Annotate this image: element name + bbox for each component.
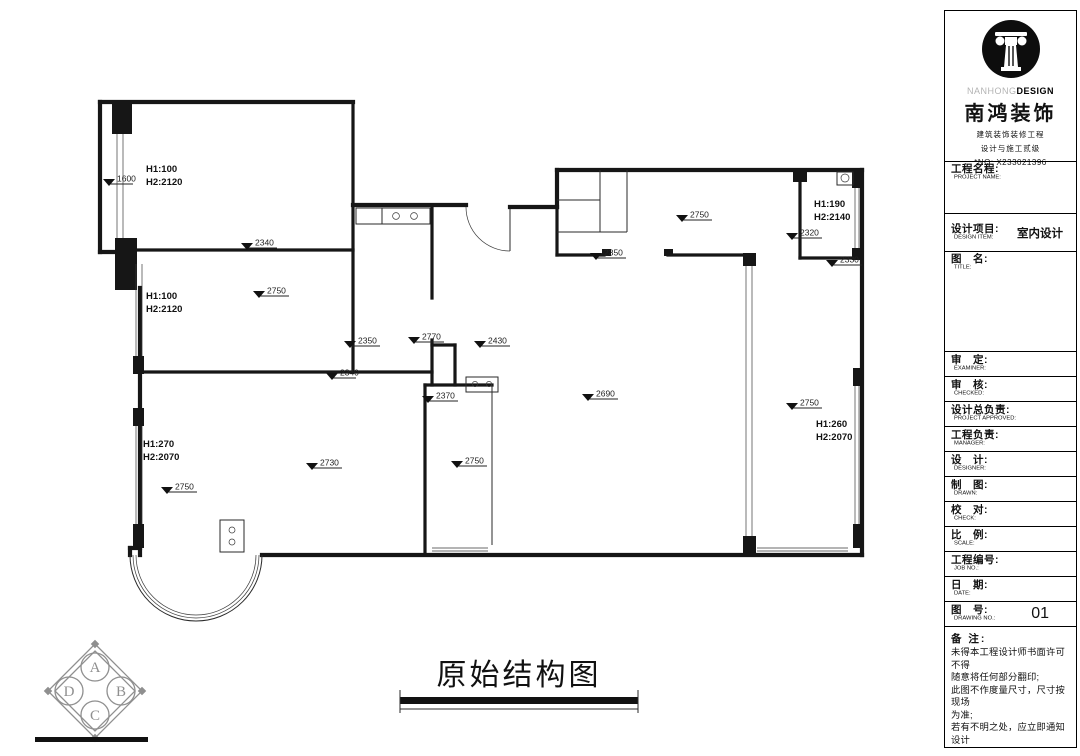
svg-text:2340: 2340 xyxy=(255,238,274,248)
field-label-en: DESIGNER: xyxy=(954,466,986,472)
svg-text:2690: 2690 xyxy=(596,389,615,399)
level-marker: 2350 xyxy=(590,248,626,261)
level-markers: 1600234027502350277024302340237026902750… xyxy=(103,174,862,495)
level-marker: 2730 xyxy=(306,458,342,471)
brand-latin-name: NANHONGDESIGN xyxy=(945,86,1076,96)
title-block-row: 制 图:DRAWN: xyxy=(945,476,1076,501)
level-marker: 1600 xyxy=(103,174,136,187)
drawing-sheet: 原始结构图 A D B C 16002340275023502770243023… xyxy=(0,0,1080,756)
company-logo-icon xyxy=(981,19,1041,79)
window-height-label: H1:260H2:2070 xyxy=(816,419,852,443)
svg-text:2320: 2320 xyxy=(800,228,819,238)
level-marker: 2340 xyxy=(326,368,359,381)
note-line: 若有不明之处，应立即通知设计 xyxy=(951,721,1070,746)
title-block-row: 审 定:EXAMINER: xyxy=(945,351,1076,376)
svg-text:2750: 2750 xyxy=(690,210,709,220)
compass-letter-c: C xyxy=(90,708,100,724)
title-block-row: 工程负责:MANAGER: xyxy=(945,426,1076,451)
company-brand: NANHONGDESIGN 南鸿装饰 建筑装饰装修工程 设计与施工贰级 *NO:… xyxy=(945,11,1076,161)
title-block-rows: 工程名程:PROJECT NAME:设计项目:DESIGN ITEM:室内设计图… xyxy=(945,161,1076,626)
field-label-en: SCALE: xyxy=(954,541,985,547)
field-value: 室内设计 xyxy=(1017,225,1063,241)
title-block-row: 设计项目:DESIGN ITEM:室内设计 xyxy=(945,213,1076,251)
svg-text:H1:270: H1:270 xyxy=(143,439,174,450)
compass-letter-a: A xyxy=(90,660,101,676)
svg-text:2340: 2340 xyxy=(340,368,359,378)
notes-title: 备 注: xyxy=(951,631,1070,646)
window-height-label: H1:100H2:2120 xyxy=(146,291,182,315)
note-line: 此图不作度量尺寸，尺寸按现场 xyxy=(951,684,1070,709)
svg-text:2750: 2750 xyxy=(175,482,194,492)
note-line: 未得本工程设计师书面许可不得 xyxy=(951,646,1070,671)
title-block: NANHONGDESIGN 南鸿装饰 建筑装饰装修工程 设计与施工贰级 *NO:… xyxy=(944,10,1077,748)
notes-section: 备 注: 未得本工程设计师书面许可不得随意将任何部分翻印;此图不作度量尺寸，尺寸… xyxy=(945,626,1076,747)
title-block-row: 校 对:CHECK: xyxy=(945,501,1076,526)
field-label-en: EXAMINER: xyxy=(954,366,986,372)
svg-text:H2:2120: H2:2120 xyxy=(146,177,182,188)
compass-letter-d: D xyxy=(64,684,75,700)
level-marker: 2750 xyxy=(161,482,197,495)
svg-text:H1:260: H1:260 xyxy=(816,419,847,430)
field-label-cn: 设计项目: xyxy=(951,224,999,235)
walls xyxy=(100,102,862,555)
svg-text:2750: 2750 xyxy=(267,286,286,296)
title-block-row: 工程编号:JOB NO.: xyxy=(945,551,1076,576)
window-height-label: H1:100H2:2120 xyxy=(146,164,182,188)
title-block-row: 审 核:CHECKED: xyxy=(945,376,1076,401)
level-marker: 2750 xyxy=(786,398,822,411)
field-value: 01 xyxy=(1031,605,1049,623)
svg-text:H2:2070: H2:2070 xyxy=(143,452,179,463)
field-label-en: DESIGN ITEM: xyxy=(954,235,995,241)
level-marker: 2690 xyxy=(582,389,618,402)
level-marker: 2340 xyxy=(241,238,277,251)
title-block-row: 设计总负责:PROJECT APPROVED: xyxy=(945,401,1076,426)
level-marker: 2370 xyxy=(422,391,458,404)
title-block-row: 设 计:DESIGNER: xyxy=(945,451,1076,476)
svg-text:H2:2070: H2:2070 xyxy=(816,432,852,443)
level-marker: 2330 xyxy=(826,255,862,268)
plan-caption: 原始结构图 xyxy=(400,659,638,713)
brand-chinese-name: 南鸿装饰 xyxy=(945,97,1076,126)
compass-letter-b: B xyxy=(116,684,126,700)
svg-text:H2:2140: H2:2140 xyxy=(814,212,850,223)
svg-text:2750: 2750 xyxy=(800,398,819,408)
svg-text:H2:2120: H2:2120 xyxy=(146,304,182,315)
svg-text:2750: 2750 xyxy=(465,456,484,466)
level-marker: 2350 xyxy=(344,336,380,349)
notes-lines: 未得本工程设计师书面许可不得随意将任何部分翻印;此图不作度量尺寸，尺寸按现场为准… xyxy=(951,646,1070,747)
field-label-en: DRAWN: xyxy=(954,491,985,497)
caption-text: 原始结构图 xyxy=(437,659,602,692)
svg-text:1600: 1600 xyxy=(117,174,136,184)
field-label-en: TITLE: xyxy=(954,265,985,271)
svg-text:2350: 2350 xyxy=(358,336,377,346)
field-label-en: MANAGER: xyxy=(954,441,995,447)
level-marker: 2320 xyxy=(786,228,822,241)
level-marker: 2430 xyxy=(474,336,510,349)
window-height-label: H1:190H2:2140 xyxy=(814,199,850,223)
title-block-row: 日 期:DATE: xyxy=(945,576,1076,601)
note-line: 师。 xyxy=(951,746,1070,747)
note-line: 随意将任何部分翻印; xyxy=(951,671,1070,684)
field-label-en: DATE: xyxy=(954,591,985,597)
svg-text:2730: 2730 xyxy=(320,458,339,468)
border-bar xyxy=(35,737,148,742)
level-marker: 2750 xyxy=(676,210,712,223)
field-label-en: PROJECT APPROVED: xyxy=(954,416,1016,422)
svg-text:H1:190: H1:190 xyxy=(814,199,845,210)
svg-text:2430: 2430 xyxy=(488,336,507,346)
svg-text:H1:100: H1:100 xyxy=(146,164,177,175)
field-label-en: CHECK: xyxy=(954,516,985,522)
title-block-row: 图 名:TITLE: xyxy=(945,251,1076,351)
svg-text:2770: 2770 xyxy=(422,332,441,342)
level-marker: 2750 xyxy=(253,286,289,299)
brand-subtitle-2: 设计与施工贰级 xyxy=(945,143,1076,154)
field-label-en: JOB NO.: xyxy=(954,566,995,572)
svg-text:2330: 2330 xyxy=(840,255,859,265)
field-label-en: PROJECT NAME: xyxy=(954,175,1001,181)
title-block-row: 图 号:DRAWING NO.:01 xyxy=(945,601,1076,626)
fixtures xyxy=(220,172,853,552)
compass-logo: A D B C xyxy=(44,640,146,742)
title-block-row: 比 例:SCALE: xyxy=(945,526,1076,551)
svg-text:2350: 2350 xyxy=(604,248,623,258)
floor-plan: 原始结构图 A D B C 16002340275023502770243023… xyxy=(0,0,944,756)
field-label-en: CHECKED: xyxy=(954,391,985,397)
window-height-label: H1:270H2:2070 xyxy=(143,439,179,463)
svg-text:2370: 2370 xyxy=(436,391,455,401)
brand-subtitle-1: 建筑装饰装修工程 xyxy=(945,129,1076,140)
level-marker: 2750 xyxy=(451,456,487,469)
level-marker: 2770 xyxy=(408,332,444,345)
field-label-en: DRAWING NO.: xyxy=(954,616,995,622)
svg-text:H1:100: H1:100 xyxy=(146,291,177,302)
note-line: 为准; xyxy=(951,709,1070,722)
title-block-row: 工程名程:PROJECT NAME: xyxy=(945,161,1076,213)
